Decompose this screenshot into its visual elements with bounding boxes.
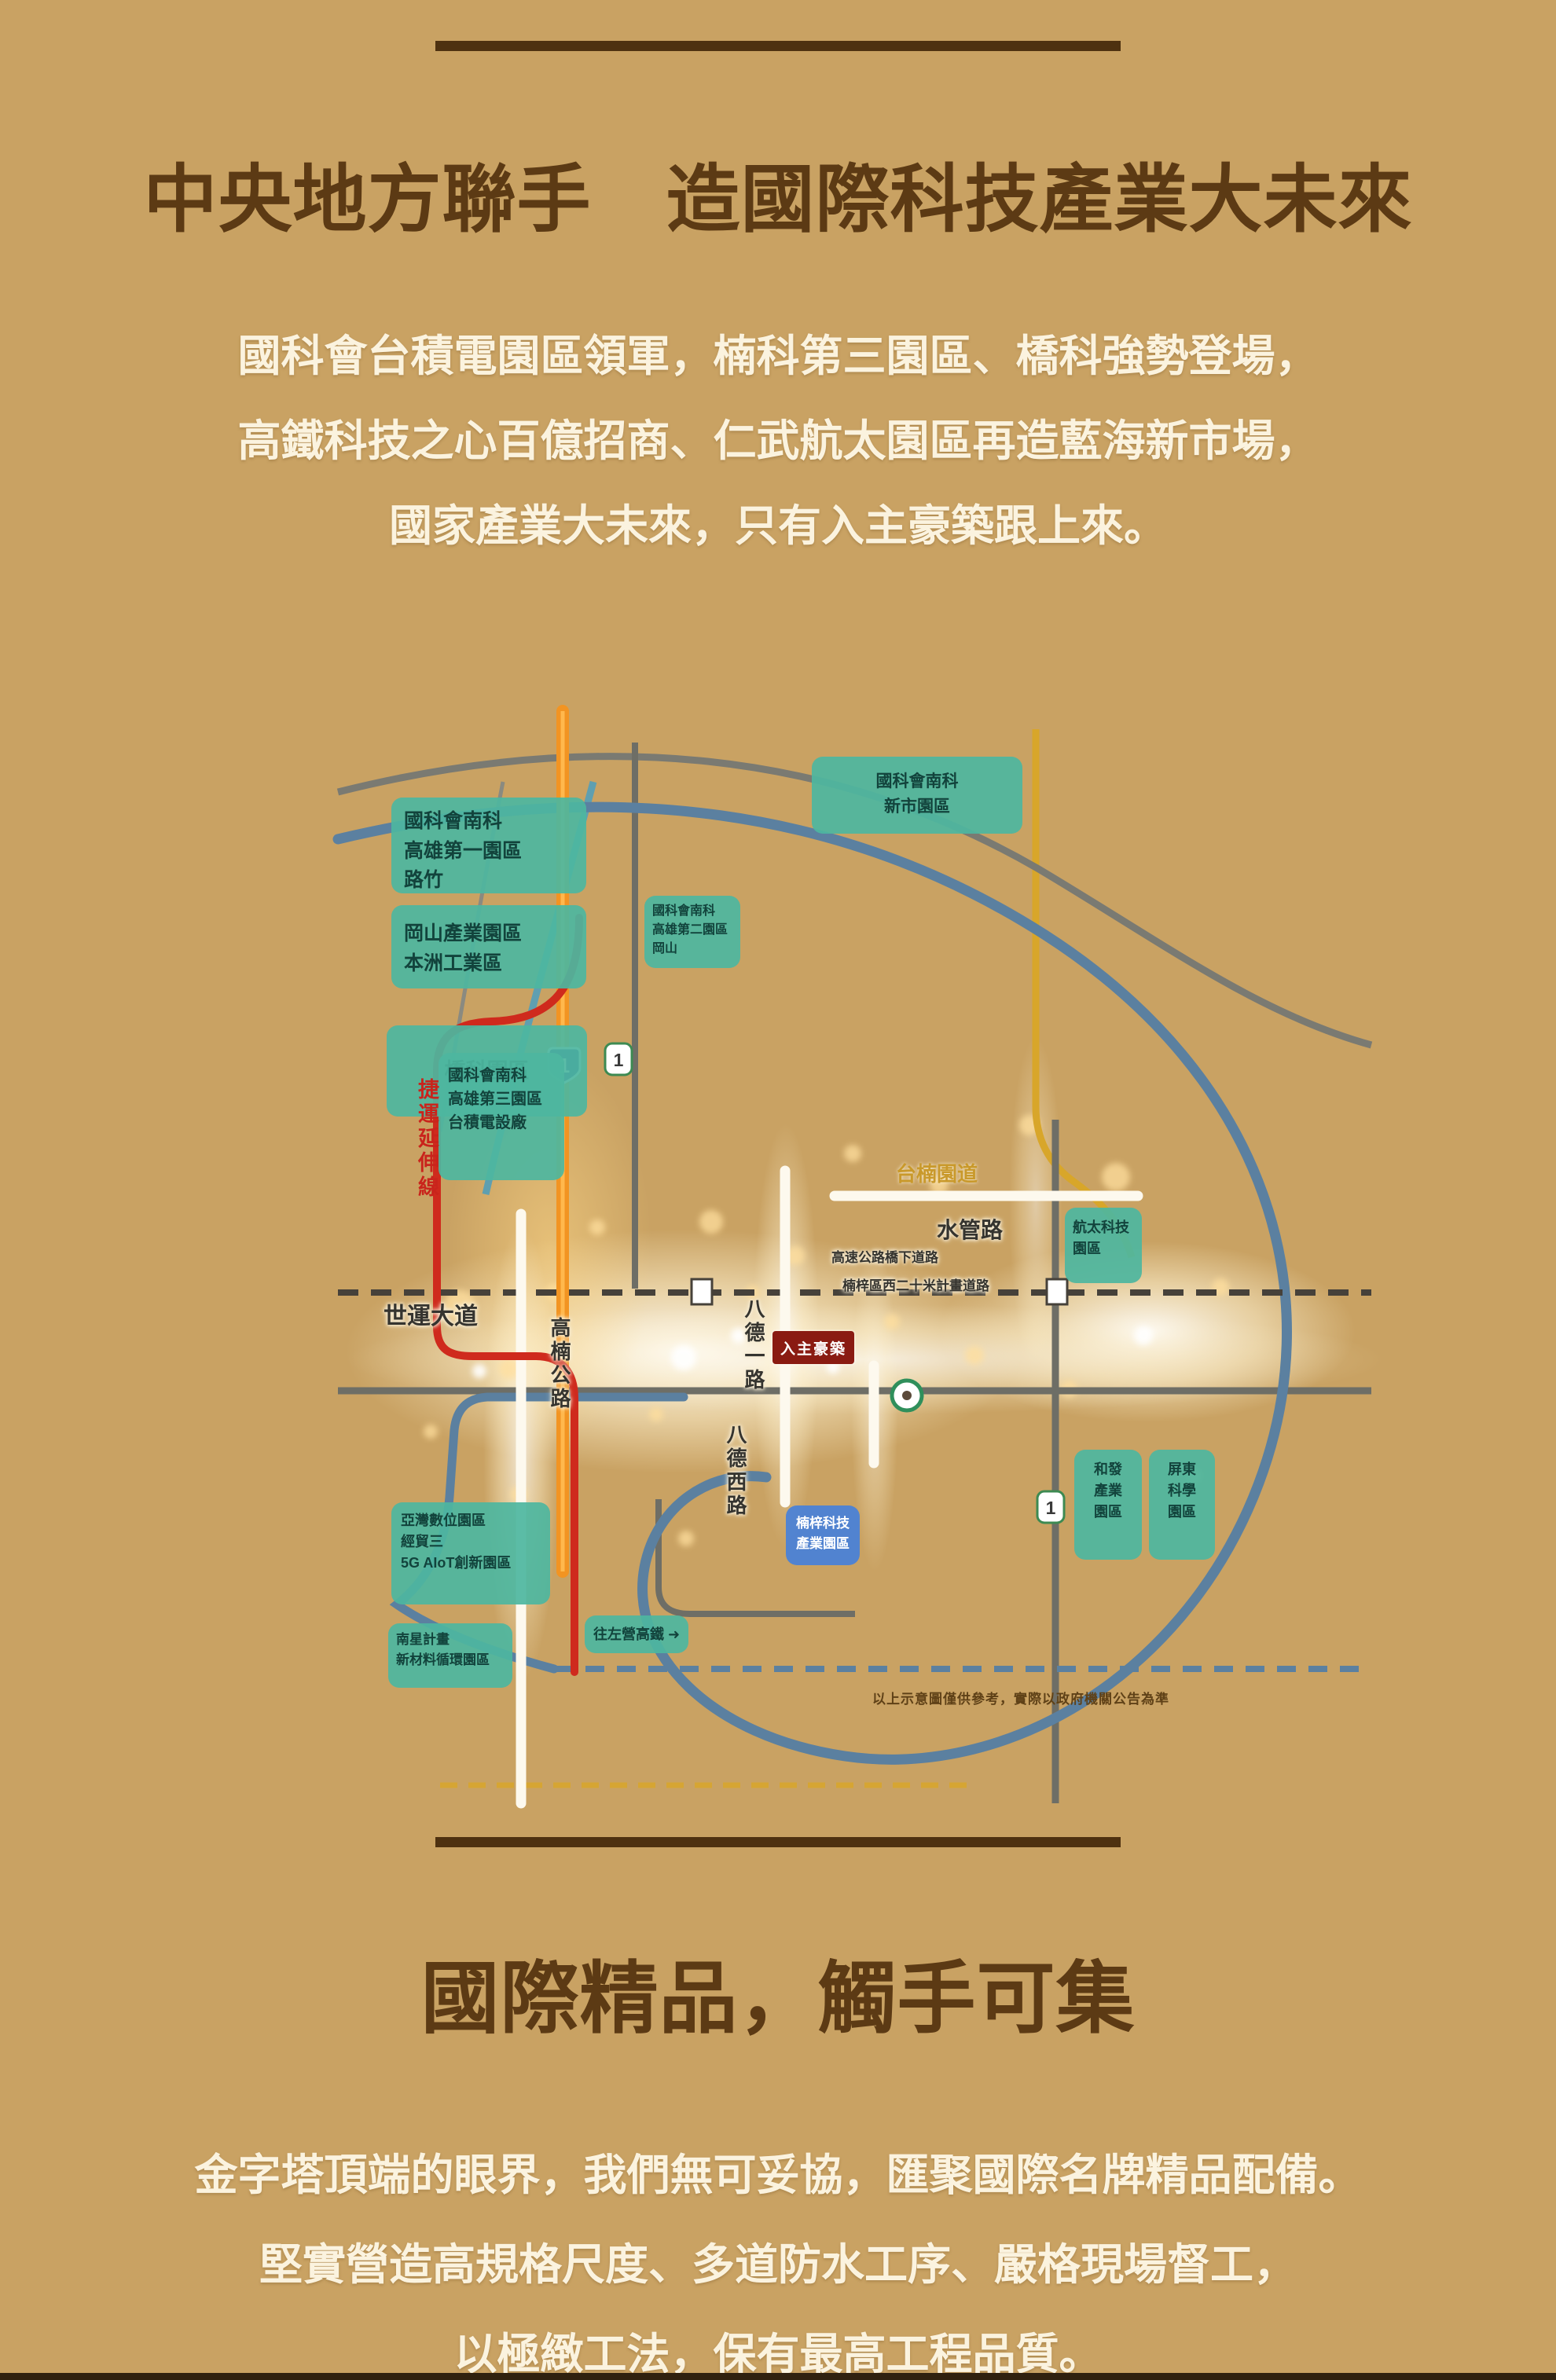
- promo-page: 中央地方聯手 造國際科技產業大未來 國科會台積電園區領軍，楠科第三園區、橋科強勢…: [0, 0, 1556, 2380]
- bottom-divider: [435, 1837, 1121, 1847]
- park-label-pingtung: 屏東科學園區: [1149, 1450, 1215, 1560]
- boutique-line-3: 以極緻工法，保有最高工程品質。: [0, 2310, 1556, 2380]
- intro-line-1: 國科會台積電園區領軍，楠科第三園區、橋科強勢登場，: [0, 314, 1556, 399]
- svg-text:1: 1: [1046, 1498, 1056, 1518]
- boutique-line-2: 堅實營造高規格尺度、多道防水工序、嚴格現場督工，: [0, 2220, 1556, 2310]
- park-label-xinshi: 國科會南科新市園區: [812, 757, 1022, 834]
- page-title: 中央地方聯手 造國際科技產業大未來: [0, 140, 1556, 247]
- map-label-to-hsr: 往左營高鐵 ➜: [585, 1615, 688, 1653]
- park-label-nanxing: 南星計畫新材料循環園區: [388, 1623, 512, 1688]
- svg-text:1: 1: [614, 1050, 624, 1070]
- metro-station-icon: [892, 1381, 922, 1410]
- road-label-under-freeway: 高速公路橋下道路: [831, 1246, 938, 1266]
- rail-station: [1047, 1279, 1067, 1304]
- road-label-gaonan-hwy: 高楠公路: [545, 1317, 574, 1411]
- map-disclaimer: 以上示意圖僅供參考，實際以政府機關公告為準: [872, 1688, 1169, 1707]
- rail-station: [692, 1279, 712, 1304]
- park-label-aerospace: 航太科技園區: [1065, 1208, 1142, 1283]
- boutique-paragraph: 金字塔頂端的眼界，我們無可妥協，匯聚國際名牌精品配備。 堅實營造高規格尺度、多道…: [0, 2131, 1556, 2380]
- road-label-bade-1st: 八德一路: [739, 1298, 769, 1392]
- boutique-line-1: 金字塔頂端的眼界，我們無可妥協，匯聚國際名牌精品配備。: [0, 2131, 1556, 2220]
- park-label-nanzi-tech: 楠梓科技產業園區: [786, 1505, 860, 1565]
- road-label-planned-20m: 楠梓區西二十米計畫道路: [842, 1274, 989, 1294]
- intro-paragraph: 國科會台積電園區領軍，楠科第三園區、橋科強勢登場， 高鐵科技之心百億招商、仁武航…: [0, 314, 1556, 569]
- intro-line-2: 高鐵科技之心百億招商、仁武航太園區再造藍海新市場，: [0, 399, 1556, 484]
- park-label-luzhu: 國科會南科高雄第一園區路竹: [391, 798, 586, 893]
- road-label-mrt-extension: 捷運延伸線: [412, 1078, 442, 1200]
- highway-shield-icon: 1: [1037, 1491, 1064, 1523]
- road-label-shuiguan: 水管路: [937, 1213, 1003, 1245]
- road-label-bade-west: 八德西路: [721, 1424, 750, 1518]
- park-label-gangshan: 岡山產業園區本洲工業區: [391, 905, 586, 988]
- park-label-yawan-5g: 亞灣數位園區經貿三5G AIoT創新園區: [391, 1502, 550, 1604]
- provincial-highway-shield-icon: 1: [605, 1043, 632, 1075]
- park-label-park3-tsmc: 國科會南科高雄第三園區台積電設廠: [439, 1053, 564, 1180]
- section-title-boutique: 國際精品，觸手可集: [0, 1934, 1556, 2048]
- intro-line-3: 國家產業大未來，只有入主豪築跟上來。: [0, 484, 1556, 569]
- project-badge: 入主豪築: [772, 1331, 854, 1364]
- next-section-edge: [0, 2373, 1556, 2380]
- road-label-taonan-parkway: 台楠園道: [896, 1158, 978, 1187]
- road-label-shiyun-blvd: 世運大道: [383, 1296, 478, 1331]
- park-label-park2: 國科會南科高雄第二園區岡山: [644, 896, 740, 968]
- top-divider: [435, 41, 1121, 51]
- park-label-hefa: 和發產業園區: [1074, 1450, 1142, 1560]
